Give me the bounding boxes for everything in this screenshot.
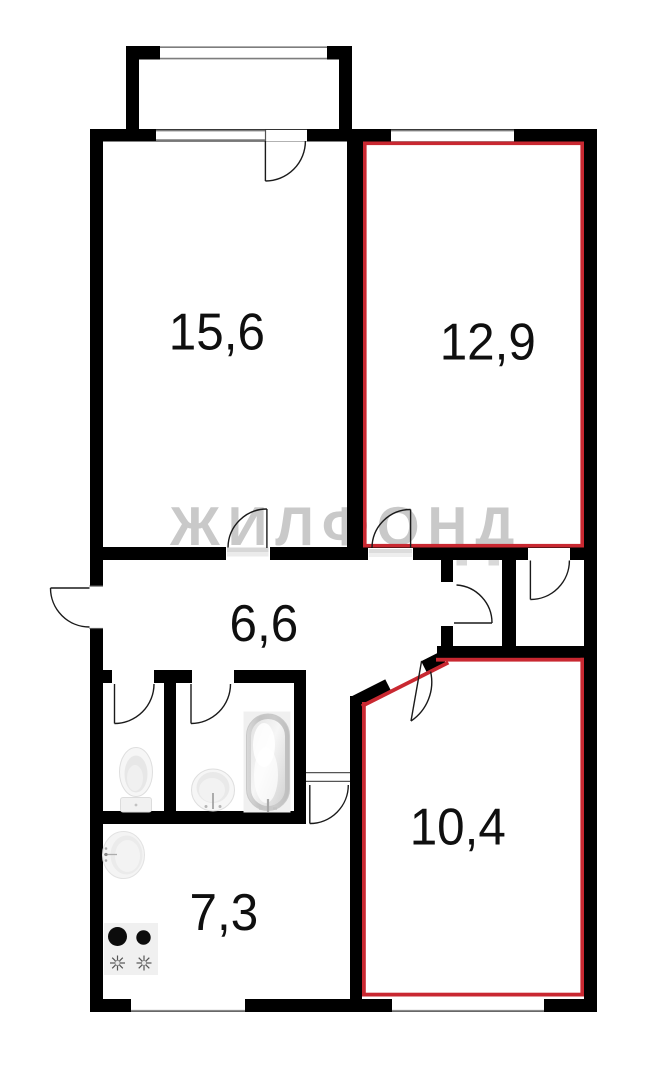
- svg-text:6,6: 6,6: [230, 594, 299, 652]
- svg-text:7,3: 7,3: [190, 883, 259, 941]
- svg-text:12,9: 12,9: [440, 312, 536, 370]
- svg-text:10,4: 10,4: [410, 798, 506, 856]
- svg-text:15,6: 15,6: [169, 302, 265, 360]
